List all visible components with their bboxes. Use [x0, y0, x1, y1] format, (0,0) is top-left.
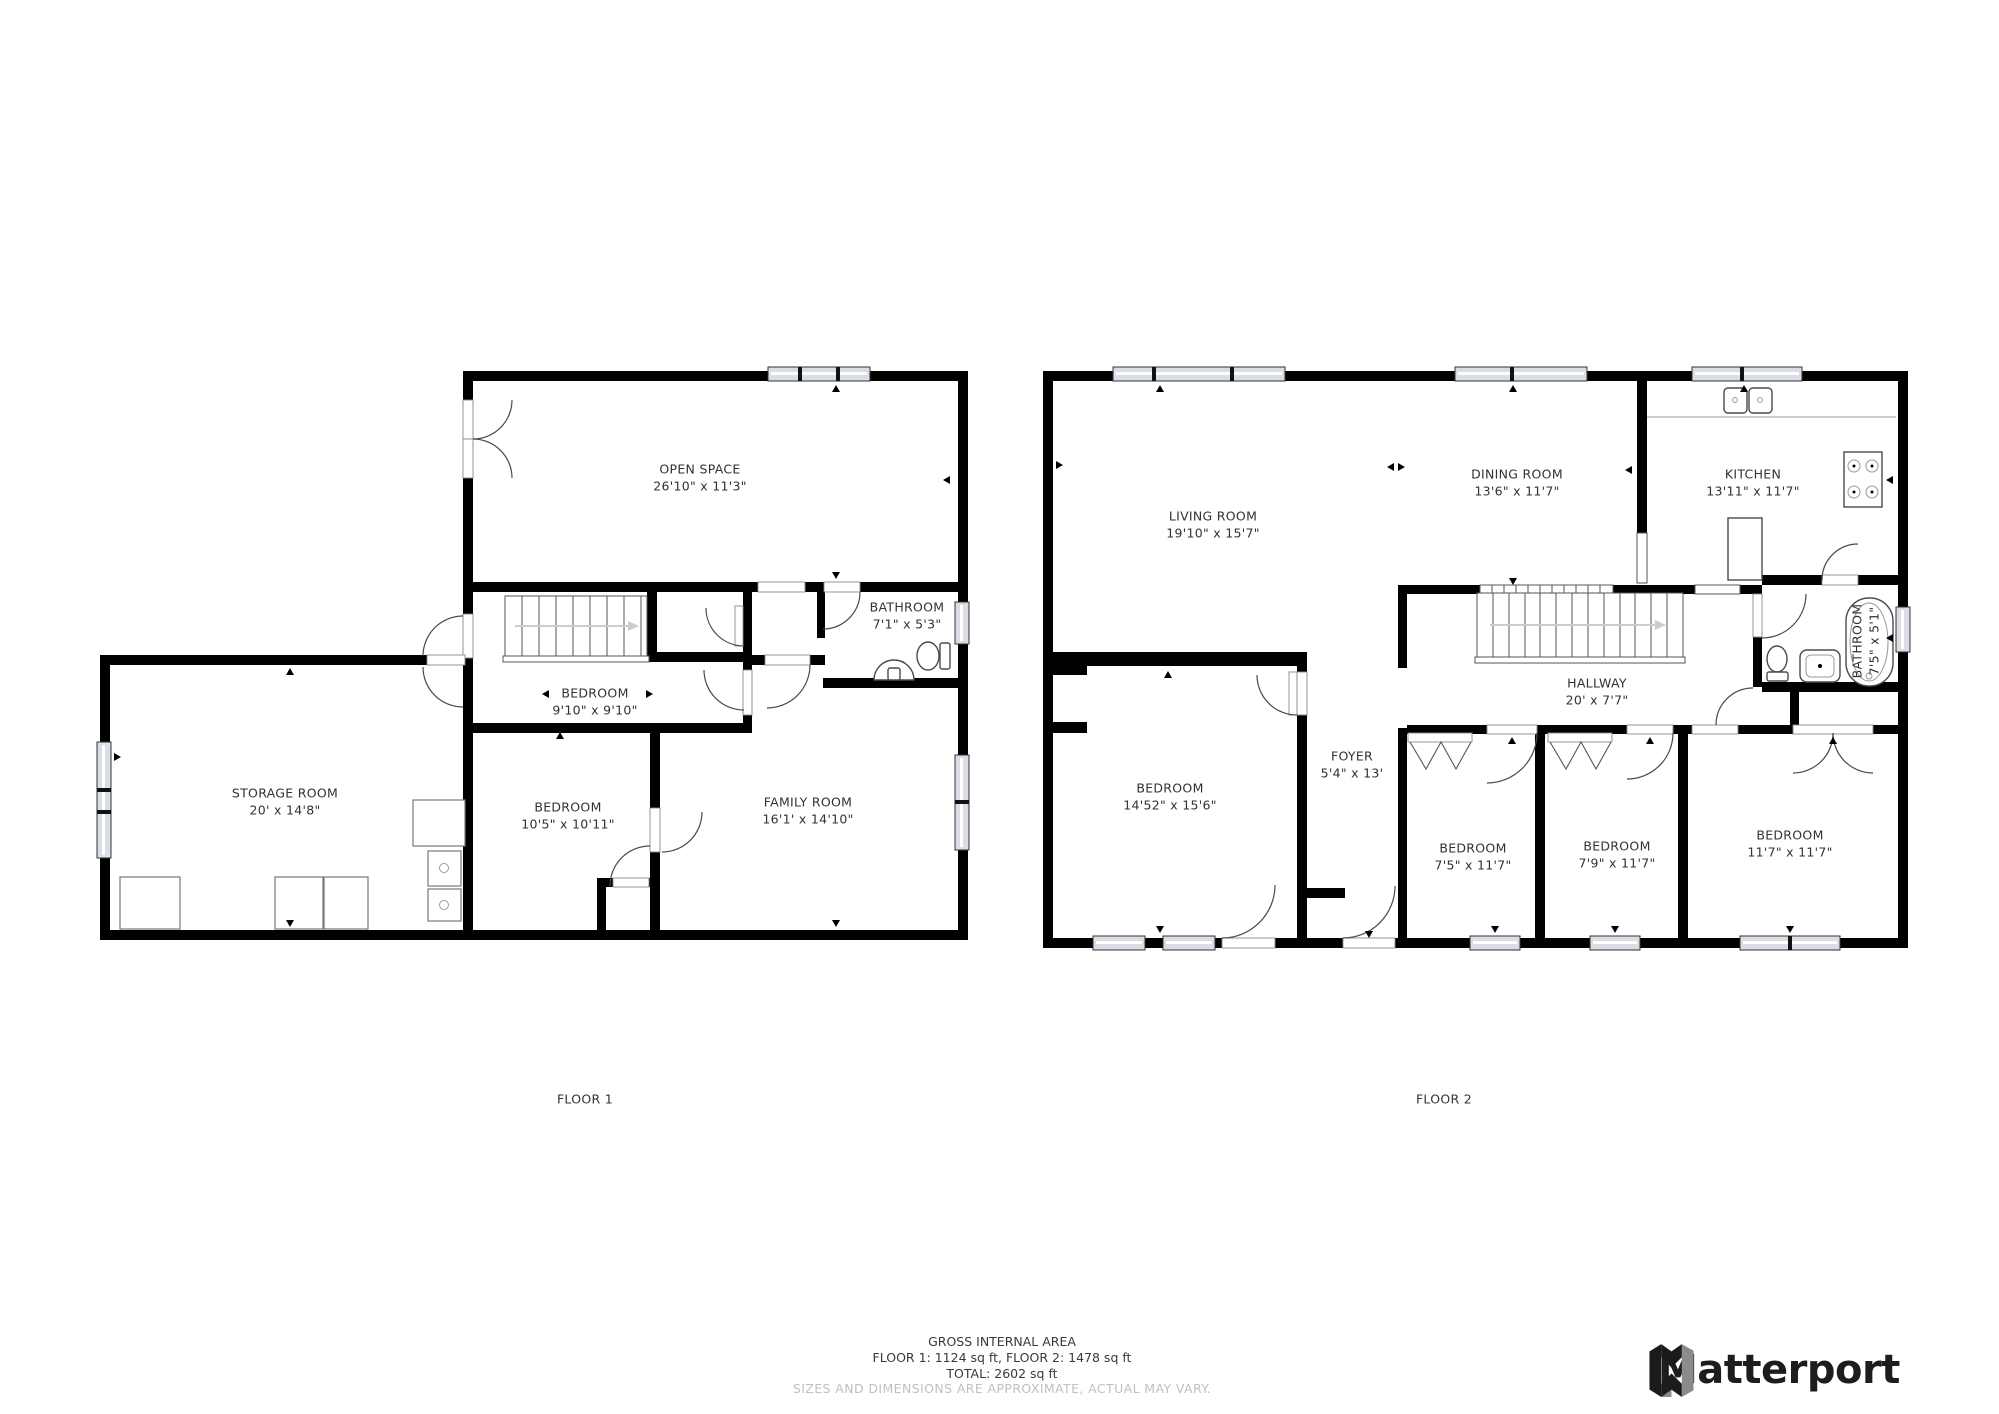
room-label-family-room: FAMILY ROOM 16'1' x 14'10" [762, 795, 853, 828]
floor1-caption: FLOOR 1 [557, 1092, 613, 1107]
floorplan-canvas [0, 0, 1999, 1414]
footer-total-area: TOTAL: 2602 sq ft [793, 1366, 1211, 1382]
room-label-bedroom-3-f2: BEDROOM 11'7" x 11'7" [1747, 828, 1832, 861]
floorplan-page: OPEN SPACE 26'10" x 11'3" BATHROOM 7'1" … [0, 0, 1999, 1414]
stairs-floor2 [1475, 593, 1685, 663]
room-label-kitchen: KITCHEN 13'11" x 11'7" [1706, 467, 1800, 500]
room-label-bedroom-mid-f1: BEDROOM 9'10" x 9'10" [552, 686, 637, 719]
matterport-logo-icon [1648, 1342, 1695, 1399]
floor2-caption: FLOOR 2 [1416, 1092, 1472, 1107]
gross-internal-area-block: GROSS INTERNAL AREA FLOOR 1: 1124 sq ft,… [793, 1334, 1211, 1397]
room-label-bathroom-f2: BATHROOM 7'5" x 5'1" [1850, 604, 1883, 679]
room-label-bedroom-1-f2: BEDROOM 7'5" x 11'7" [1434, 841, 1511, 874]
room-label-storage-room: STORAGE ROOM 20' x 14'8" [232, 786, 338, 819]
room-label-hallway: HALLWAY 20' x 7'7" [1566, 676, 1629, 709]
footer-floor-areas: FLOOR 1: 1124 sq ft, FLOOR 2: 1478 sq ft [793, 1350, 1211, 1366]
floor1-plan [97, 367, 969, 940]
storage-furniture [120, 800, 465, 929]
matterport-logo: Matterport [1648, 1342, 1900, 1399]
room-label-bathroom-f1: BATHROOM 7'1" x 5'3" [870, 600, 945, 633]
room-label-dining-room: DINING ROOM 13'6" x 11'7" [1471, 467, 1563, 500]
bathroom1-fixtures [874, 642, 950, 680]
footer-disclaimer: SIZES AND DIMENSIONS ARE APPROXIMATE, AC… [793, 1381, 1211, 1397]
room-label-bedroom-2-f2: BEDROOM 7'9" x 11'7" [1578, 839, 1655, 872]
room-label-bedroom-low-f1: BEDROOM 10'5" x 10'11" [521, 800, 615, 833]
room-label-living-room: LIVING ROOM 19'10" x 15'7" [1166, 509, 1260, 542]
room-label-open-space: OPEN SPACE 26'10" x 11'3" [653, 462, 747, 495]
footer-title: GROSS INTERNAL AREA [793, 1334, 1211, 1350]
stairs-floor1 [503, 596, 649, 662]
room-label-foyer: FOYER 5'4" x 13' [1321, 749, 1384, 782]
room-label-bedroom-large-f2: BEDROOM 14'52" x 15'6" [1123, 781, 1217, 814]
